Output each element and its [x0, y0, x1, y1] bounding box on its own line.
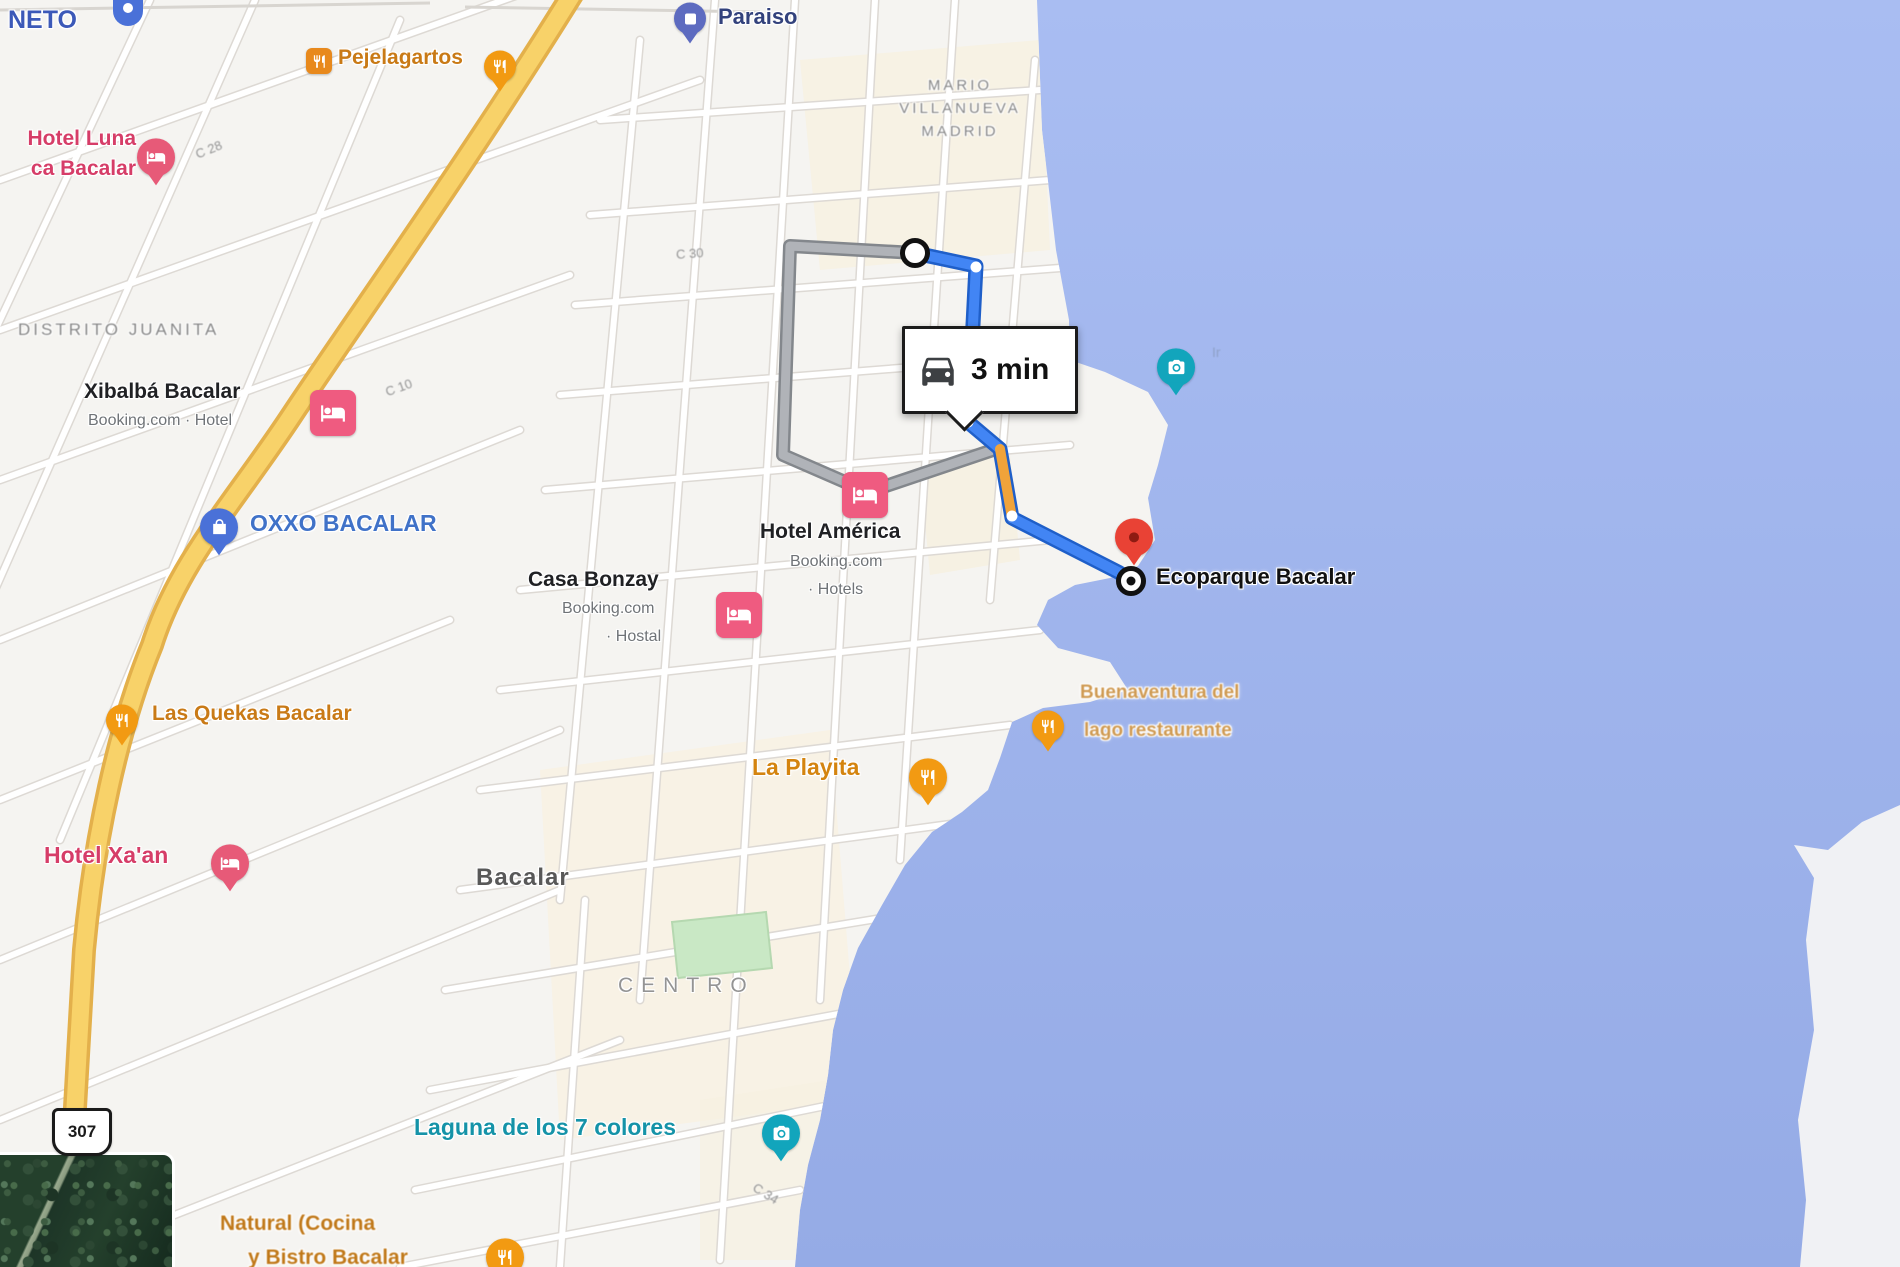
restaurant-icon — [492, 58, 508, 74]
restaurant-chip-icon[interactable] — [306, 48, 332, 74]
poi-sublabel-hotel-america-2: · Hotels — [808, 581, 863, 599]
restaurant-icon — [1040, 718, 1056, 734]
attraction-pin[interactable] — [762, 1114, 800, 1152]
poi-sublabel-hotel-america-1: Booking.com — [790, 553, 883, 571]
restaurant-icon — [114, 712, 130, 728]
camera-icon — [1167, 358, 1186, 377]
restaurant-pin[interactable] — [106, 704, 138, 736]
route-start-marker[interactable] — [900, 238, 930, 268]
street-label-mario-3: MADRID — [880, 120, 1040, 143]
map-canvas[interactable] — [0, 0, 1900, 1267]
poi-sublabel-casa-bonzay-1: Booking.com — [562, 600, 655, 618]
restaurant-icon — [496, 1248, 514, 1266]
restaurant-icon — [312, 54, 327, 69]
bed-icon — [726, 602, 752, 628]
restaurant-pin[interactable] — [1032, 710, 1064, 742]
poi-sublabel-xibalba: Booking.com · Hotel — [88, 412, 232, 430]
bed-icon — [852, 482, 878, 508]
lodging-square-pin[interactable] — [716, 592, 762, 638]
bed-icon — [146, 147, 166, 167]
poi-label-hotel-luna-line2[interactable]: ca Bacalar — [0, 154, 136, 184]
street-label-mario-2: VILLANUEVA — [880, 97, 1040, 120]
destination-pin[interactable] — [1115, 518, 1153, 556]
square-glyph-icon — [684, 12, 697, 25]
destination-label[interactable]: Ecoparque Bacalar — [1156, 564, 1355, 590]
lodging-pin[interactable] — [211, 844, 249, 882]
route-waypoint-dot — [971, 262, 982, 273]
shopping-bag-icon — [210, 518, 229, 537]
poi-label-laguna[interactable]: Laguna de los 7 colores — [414, 1114, 676, 1141]
area-label-distrito: DISTRITO JUANITA — [18, 320, 219, 340]
restaurant-pin[interactable] — [909, 758, 947, 796]
restaurant-icon — [919, 768, 937, 786]
poi-label-buenaventura-2[interactable]: lago restaurante — [1084, 720, 1232, 742]
route-duration-tooltip[interactable]: 3 min — [902, 326, 1078, 414]
poi-label-hotel-xaan[interactable]: Hotel Xa'an — [44, 842, 168, 869]
central-park — [672, 912, 772, 978]
poi-label-xibalba[interactable]: Xibalbá Bacalar — [84, 380, 240, 404]
poi-label-natural-1[interactable]: Natural (Cocina — [220, 1212, 375, 1236]
bed-icon — [220, 853, 240, 873]
poi-sublabel-casa-bonzay-2: · Hostal — [606, 628, 661, 646]
poi-label-neto[interactable]: NETO — [8, 6, 77, 35]
area-label-centro: CENTRO — [618, 974, 755, 998]
lodging-square-pin[interactable] — [842, 472, 888, 518]
route-waypoint-dot — [1007, 511, 1018, 522]
street-label-mario-1: MARIO — [880, 74, 1040, 97]
street-fragment: C 30 — [676, 245, 704, 262]
convenience-store-pin[interactable] — [200, 508, 238, 546]
restaurant-pin[interactable] — [484, 50, 516, 82]
map-viewport[interactable]: NETO Paraiso Pejelagartos Hotel Luna ca … — [0, 0, 1900, 1267]
satellite-layer-thumbnail[interactable] — [0, 1152, 175, 1267]
poi-label-quekas[interactable]: Las Quekas Bacalar — [152, 702, 352, 726]
attraction-pin-water[interactable] — [1157, 348, 1195, 386]
poi-label-buenaventura-1[interactable]: Buenaventura del — [1080, 682, 1239, 704]
city-label-bacalar: Bacalar — [476, 864, 570, 892]
camera-icon — [772, 1124, 791, 1143]
route-end-marker[interactable] — [1116, 566, 1146, 596]
poi-label-pejelagartos[interactable]: Pejelagartos — [338, 46, 463, 70]
lodging-pin[interactable] — [137, 138, 175, 176]
poi-label-oxxo[interactable]: OXXO BACALAR — [250, 510, 437, 537]
lodging-square-pin[interactable] — [310, 390, 356, 436]
poi-label-hotel-luna-line1[interactable]: Hotel Luna — [0, 124, 136, 154]
highway-number: 307 — [68, 1122, 96, 1142]
poi-label-paraiso[interactable]: Paraiso — [718, 4, 798, 30]
poi-label-natural-2[interactable]: y Bistro Bacalar — [248, 1246, 408, 1267]
route-duration: 3 min — [971, 353, 1049, 387]
faint-water-label: Ir — [1212, 344, 1221, 360]
pin-dot-icon — [1127, 530, 1141, 544]
poi-label-hotel-america[interactable]: Hotel América — [760, 520, 900, 544]
poi-label-la-playita[interactable]: La Playita — [752, 754, 859, 781]
car-icon — [917, 349, 959, 391]
bed-icon — [320, 400, 346, 426]
poi-label-casa-bonzay[interactable]: Casa Bonzay — [528, 568, 659, 592]
highway-shield-307: 307 — [52, 1108, 112, 1156]
place-pin[interactable] — [674, 2, 706, 34]
